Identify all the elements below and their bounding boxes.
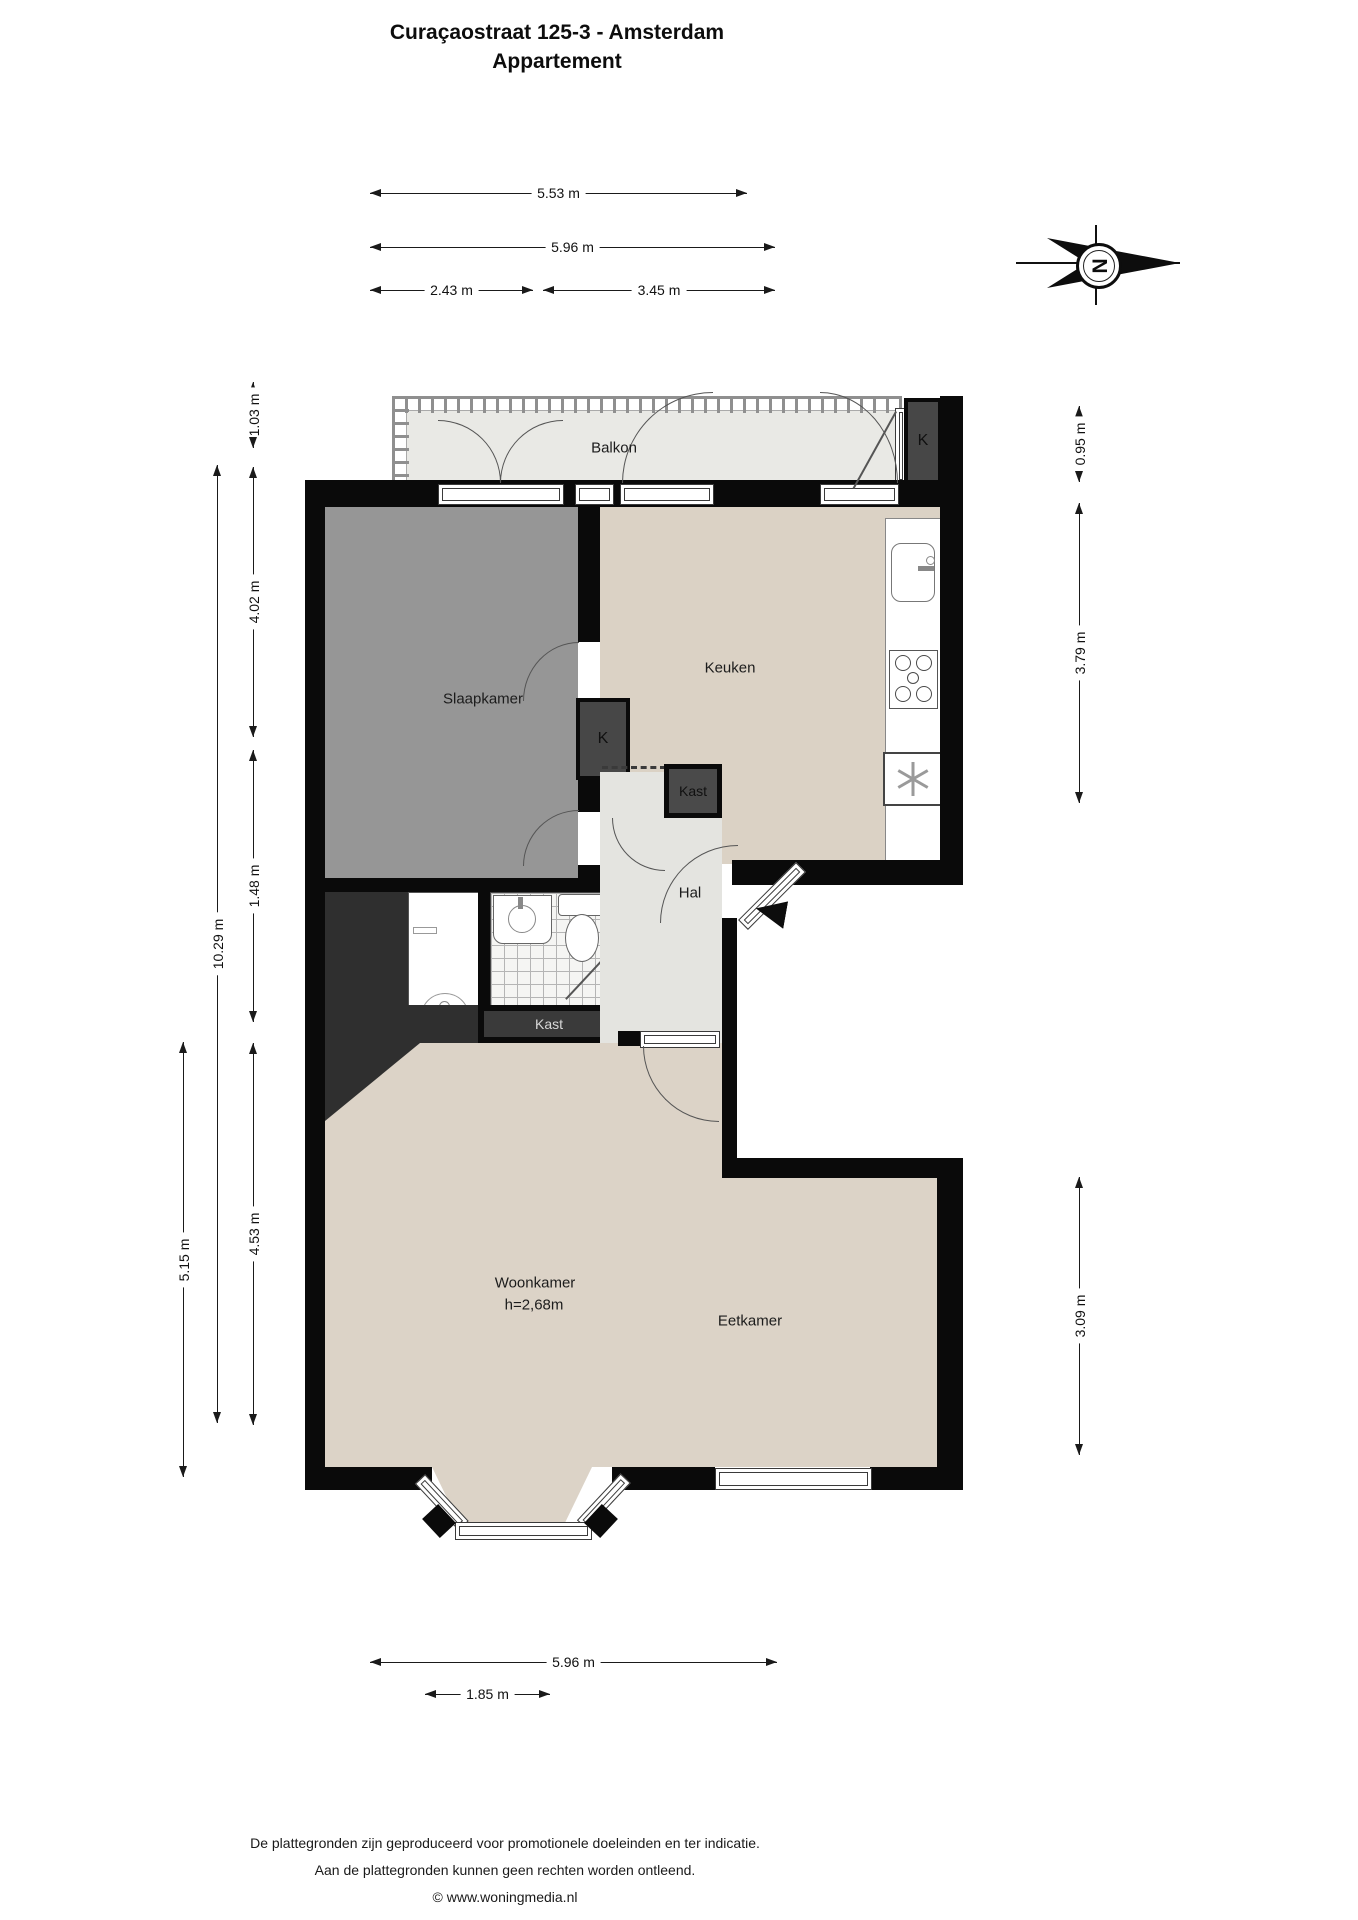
door-post (618, 1031, 640, 1046)
facade-window-small (575, 484, 614, 505)
balcony-railing-left (392, 396, 409, 482)
dim-top-596: 5.96 m (370, 247, 775, 248)
kitchen-sink-icon (891, 543, 935, 602)
dim-left-402: 4.02 m (253, 467, 254, 737)
dim-bottom-596: 5.96 m (370, 1662, 777, 1663)
dim-left-453: 4.53 m (253, 1043, 254, 1425)
kitchen-bottom-wall (732, 860, 963, 885)
kitchen-hall-opening (602, 766, 666, 769)
bedroom-door-opening-2 (578, 812, 600, 865)
bedroom-right-wall (578, 507, 600, 642)
compass-letter: N (1087, 258, 1111, 273)
dim-right-309: 3.09 m (1079, 1177, 1080, 1455)
room-label-kast-bottom: Kast (535, 1016, 563, 1032)
room-label-k-closet: K (598, 730, 609, 748)
footer-line2: Aan de plattegronden kunnen geen rechten… (155, 1857, 855, 1884)
room-label-keuken: Keuken (705, 660, 756, 677)
bathroom-inner-wall (478, 892, 490, 1005)
page-title: Curaçaostraat 125-3 - Amsterdam Appartem… (157, 18, 957, 76)
exterior-void (737, 885, 937, 1160)
bottom-wall-left (305, 1467, 432, 1490)
room-label-woonkamer-height: h=2,68m (505, 1297, 564, 1314)
dim-right-095: 0.95 m (1079, 406, 1080, 482)
room-label-balcony-k: K (918, 432, 929, 450)
dining-right-wall (937, 1158, 963, 1490)
dim-top-345: 3.45 m (543, 290, 775, 291)
dim-bottom-185: 1.85 m (425, 1694, 550, 1695)
room-label-slaapkamer: Slaapkamer (443, 691, 523, 708)
washing-machine-icon (883, 752, 943, 806)
toilet-tank-icon (558, 894, 606, 916)
floorplan-page: Curaçaostraat 125-3 - Amsterdam Appartem… (0, 0, 1358, 1920)
bedroom-door-opening (578, 642, 600, 700)
footer-line1: De plattegronden zijn geproduceerd voor … (155, 1830, 855, 1857)
room-label-balkon: Balkon (591, 440, 637, 457)
living-right-wall (722, 918, 737, 1178)
compass-circle: N (1076, 243, 1122, 289)
room-label-kast-top: Kast (679, 783, 707, 799)
bedroom-balcony-door (438, 484, 564, 505)
bedroom-bottom-wall (325, 878, 600, 892)
kitchen-balcony-door (620, 484, 714, 505)
stove-icon (889, 650, 938, 709)
room-label-eetkamer: Eetkamer (718, 1313, 782, 1330)
right-exterior-wall-upper (940, 396, 963, 885)
title-line2: Appartement (157, 47, 957, 76)
left-exterior-wall (305, 480, 325, 1490)
bottom-wall-right (870, 1467, 963, 1490)
toilet-icon (565, 914, 599, 962)
footer: De plattegronden zijn geproduceerd voor … (155, 1830, 855, 1911)
dim-top-553: 5.53 m (370, 193, 747, 194)
dim-left-148: 1.48 m (253, 750, 254, 1022)
footer-line3: © www.woningmedia.nl (155, 1884, 855, 1911)
washbasin-icon (493, 895, 552, 944)
facade-window-right (820, 484, 899, 505)
dim-left-103: 1.03 m (253, 382, 254, 448)
dim-right-379: 3.79 m (1079, 503, 1080, 803)
dim-left-1029: 10.29 m (217, 465, 218, 1423)
bottom-wall-mid (612, 1467, 715, 1490)
room-label-woonkamer: Woonkamer (495, 1275, 576, 1292)
dining-window (715, 1468, 872, 1490)
title-line1: Curaçaostraat 125-3 - Amsterdam (157, 18, 957, 47)
dark-wall-block (325, 1005, 478, 1043)
dim-top-243: 2.43 m (370, 290, 533, 291)
room-label-hal: Hal (679, 885, 702, 902)
bedroom-right-wall-2 (578, 780, 600, 812)
bay-window-front (455, 1522, 592, 1540)
dim-left-515: 5.15 m (183, 1042, 184, 1477)
dining-top-wall (722, 1158, 963, 1178)
